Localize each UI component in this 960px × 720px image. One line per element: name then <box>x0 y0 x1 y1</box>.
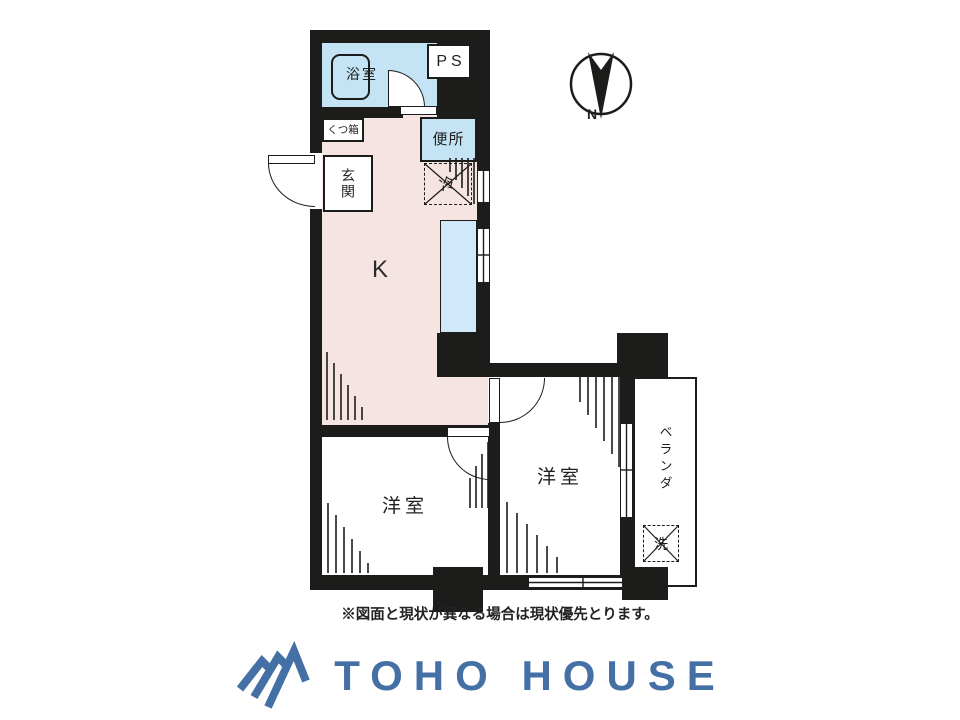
refrigerator-box: 冷 <box>424 163 472 205</box>
western-room-2-label: 洋室 <box>510 465 610 489</box>
floor-plan-page: 浴室 PS くつ箱 玄関 便所 冷 ベランダ 洗 <box>0 0 960 720</box>
washing-machine-box: 洗 <box>643 525 679 562</box>
brand-name: TOHO HOUSE <box>334 652 726 700</box>
wall-segment <box>617 333 668 377</box>
north-label: N <box>582 105 602 123</box>
entrance-box: 玄関 <box>323 155 373 212</box>
toilet-label: 便所 <box>432 132 464 147</box>
pipe-space-label: PS <box>436 54 465 70</box>
western-room-2-door-arc <box>500 378 545 423</box>
shoe-box: くつ箱 <box>322 118 364 142</box>
kitchen-counter <box>440 220 477 333</box>
bathroom-label: 浴室 <box>346 67 378 81</box>
door-threshold <box>400 106 437 115</box>
pipe-space-box: PS <box>427 44 471 79</box>
wall-segment <box>490 363 620 377</box>
footer-brand: TOHO HOUSE <box>0 636 960 716</box>
wall-segment <box>622 567 668 600</box>
western-room-1-label: 洋室 <box>355 494 455 518</box>
entrance-door-arc <box>268 163 315 207</box>
washing-machine-label: 洗 <box>654 537 668 551</box>
western-room-1-door-leaf <box>447 427 490 437</box>
window-kitchen-upper <box>477 170 490 203</box>
wall-segment <box>310 43 322 590</box>
western-room-2-door-leaf <box>489 378 500 423</box>
window-bottom-wall <box>528 577 630 588</box>
hall-floor <box>322 377 488 425</box>
note-text: ※図面と現状が異なる場合は現状優先とります。 <box>310 605 690 625</box>
wall-segment <box>437 333 490 377</box>
entrance-label: 玄関 <box>341 168 355 200</box>
brand-logo-icon <box>234 639 318 713</box>
toilet-box: 便所 <box>420 117 477 162</box>
western-room-1-door-arc <box>447 437 490 480</box>
refrigerator-label: 冷 <box>438 174 457 193</box>
window-veranda-wall <box>620 423 633 518</box>
veranda-label: ベランダ <box>659 425 672 493</box>
shoe-box-label: くつ箱 <box>327 125 359 136</box>
window-kitchen-lower <box>477 228 490 283</box>
kitchen-label: K <box>360 256 400 284</box>
